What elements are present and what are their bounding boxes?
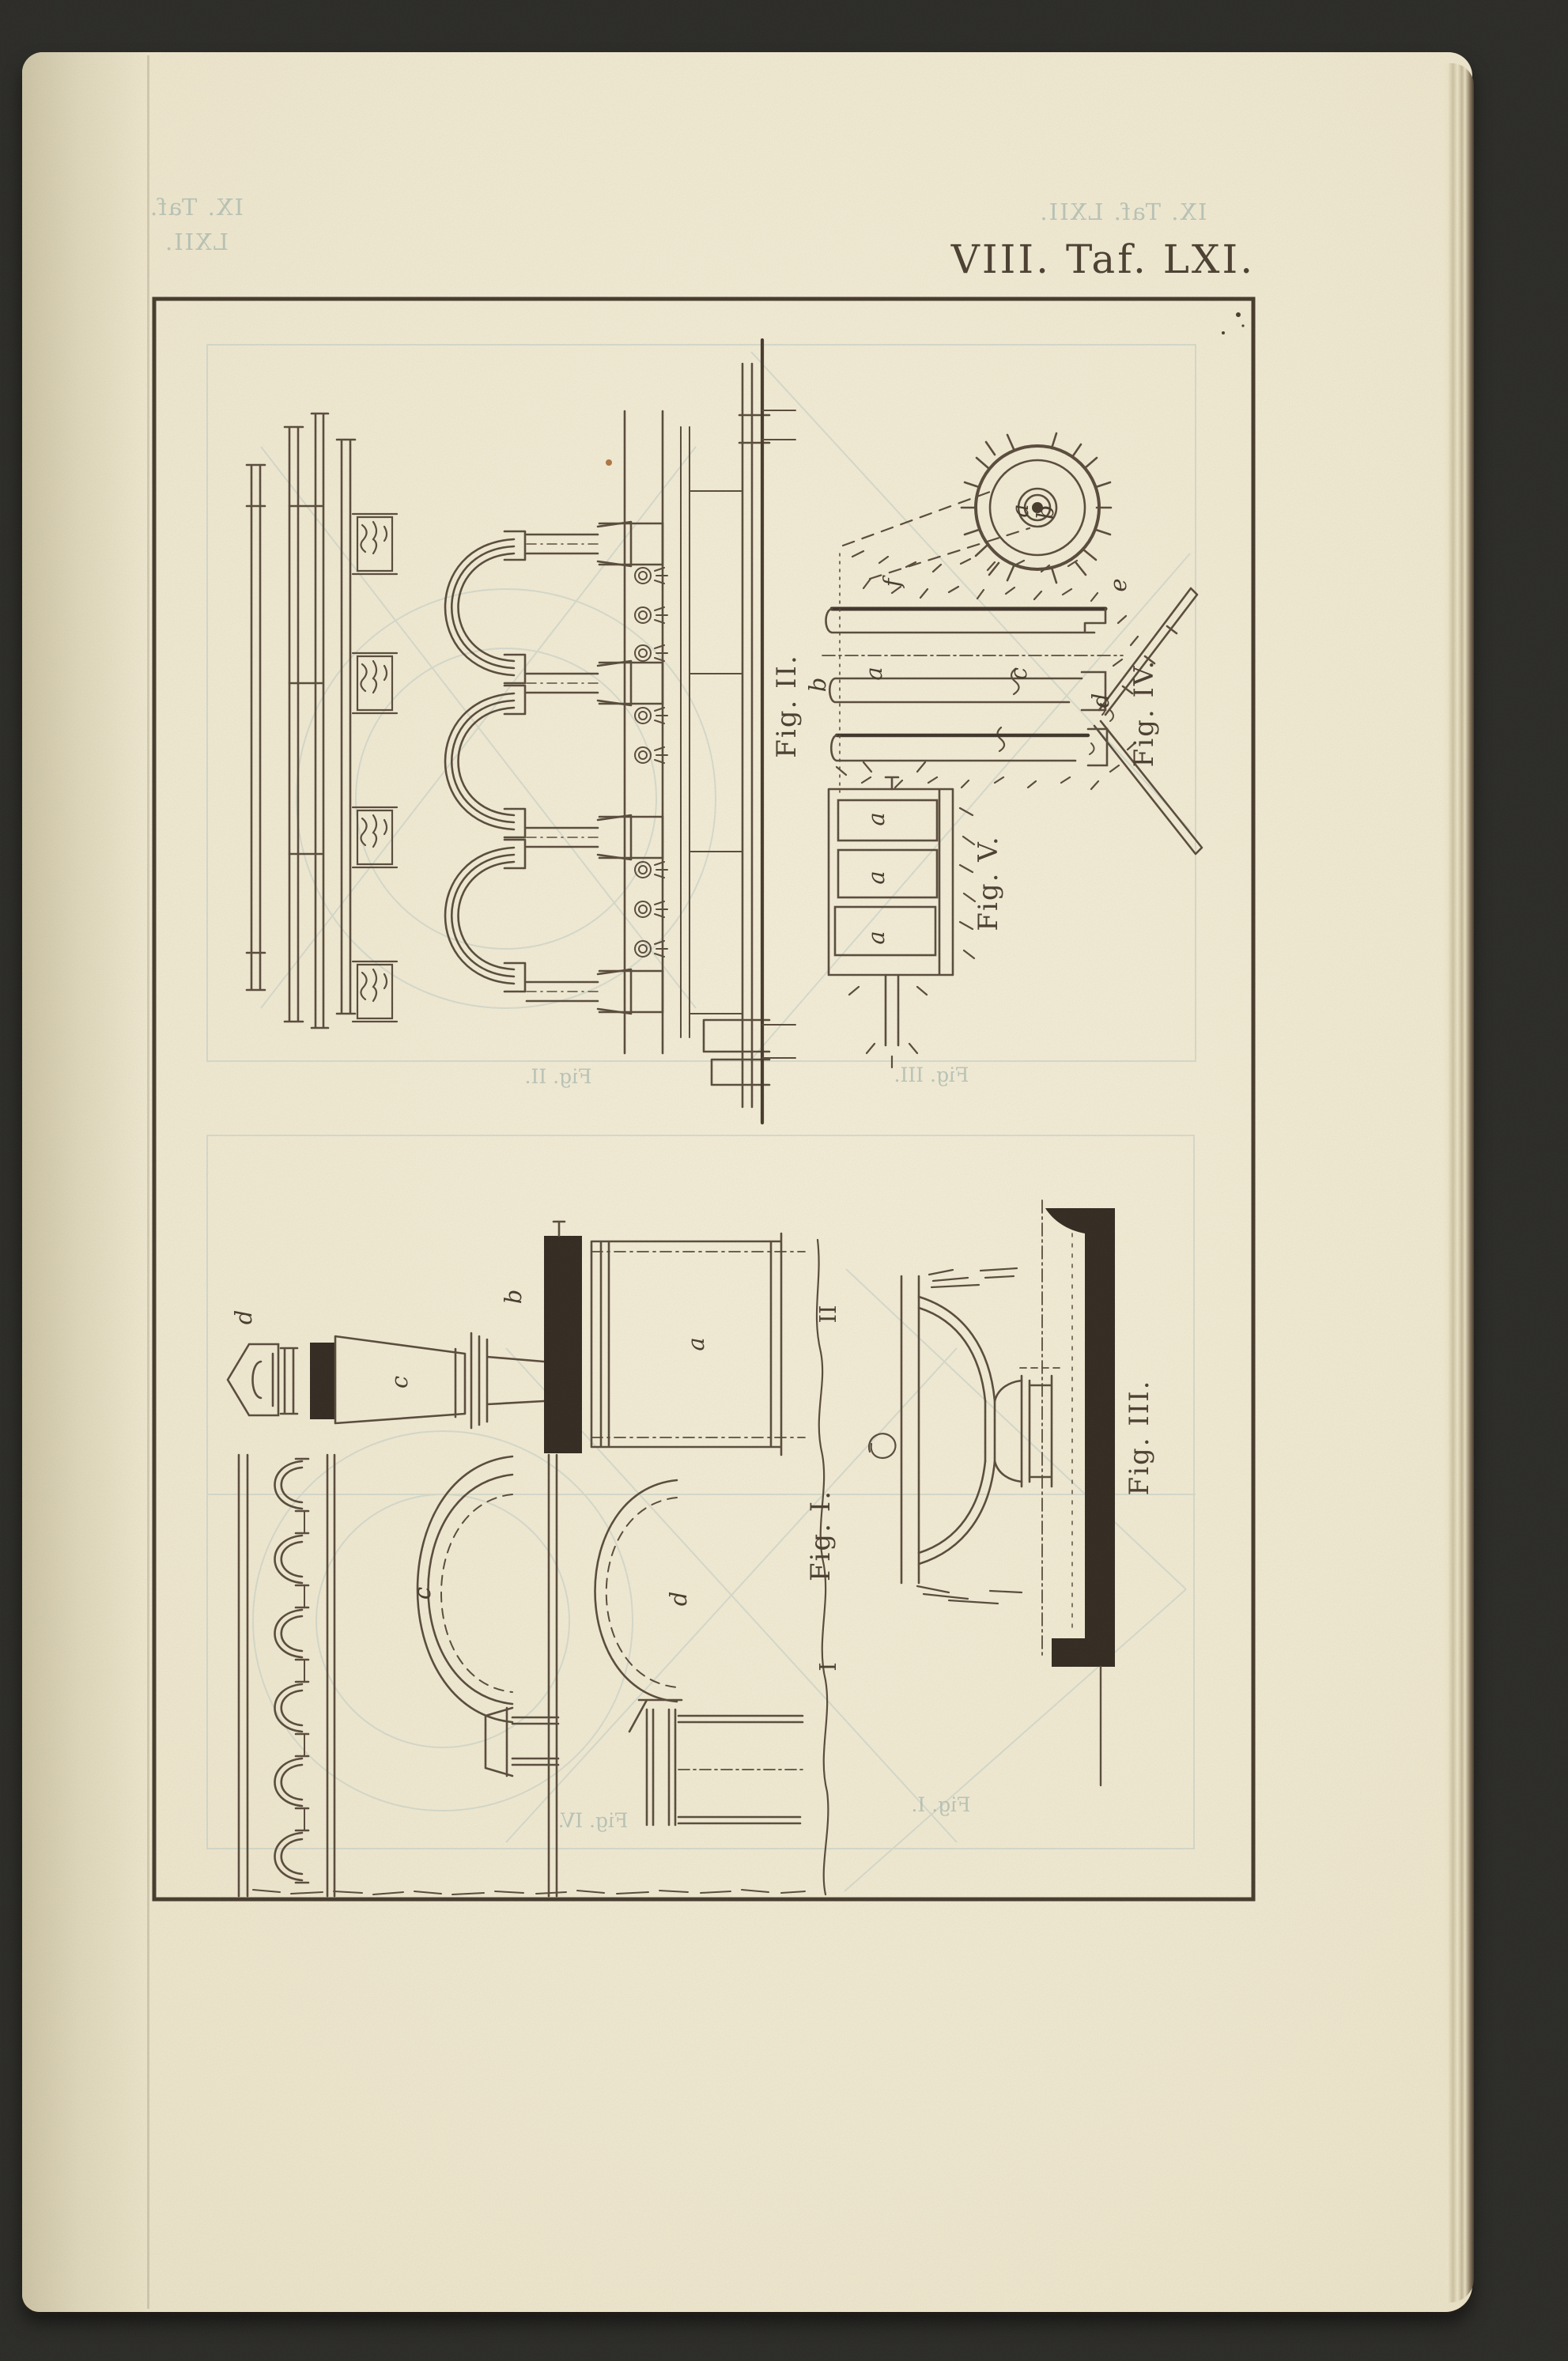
showthrough-label-upper-right: Fig. III. — [868, 1061, 995, 1090]
fig4-letter-b: b — [802, 667, 833, 702]
fig1-strip-letter-a: a — [680, 1327, 712, 1362]
paper-grain — [0, 0, 1568, 2361]
fig1-strip-letter-c: c — [383, 1365, 415, 1400]
fig1-arcade-letter-d: d — [663, 1581, 694, 1616]
fig3-label: Fig. III. — [1122, 1374, 1157, 1501]
fig1-strip-letter-d: d — [228, 1300, 259, 1335]
fig1-marker-II: II — [812, 1297, 844, 1332]
scanned-book-page: VIII. Taf. LXI. IX. Taf. LXII. IX. Taf. … — [0, 0, 1568, 2361]
fig4-letter-d: d — [1085, 683, 1116, 718]
fig4-letter-a: a — [858, 656, 890, 691]
showthrough-label-lower-right: Fig. I. — [878, 1791, 1004, 1819]
plate-artwork — [0, 0, 1568, 2361]
showthrough-title-right: IX. Taf. LXII. — [1028, 195, 1218, 229]
fig1-marker-I: I — [812, 1649, 844, 1684]
showthrough-label-lower-left: Fig. IV. — [530, 1807, 656, 1835]
fig5-cell-letter-1: a — [860, 802, 892, 837]
fig5-cell-letter-2: a — [860, 860, 892, 895]
fig4-letter-f: f — [876, 565, 908, 600]
showthrough-label-upper-left: Fig. II. — [495, 1063, 622, 1091]
fig4-label: Fig. IV. — [1127, 650, 1162, 776]
fig4-letter-e: e — [1102, 568, 1134, 603]
plate-title: VIII. Taf. LXI. — [905, 236, 1301, 283]
fig1-label: Fig. I. — [803, 1472, 838, 1599]
fig4-letter-c: c — [1003, 656, 1034, 691]
fig5-cell-letter-3: a — [860, 920, 892, 955]
fig2-label: Fig. II. — [769, 643, 804, 769]
fig1-arcade-letter-c: c — [406, 1576, 438, 1611]
showthrough-title-left: IX. Taf. LXII. — [117, 190, 275, 225]
fig1-strip-letter-b: b — [497, 1279, 529, 1314]
fig4-wheel-letter-b: b — [1030, 495, 1061, 530]
fig5-label: Fig. V. — [971, 820, 1006, 946]
